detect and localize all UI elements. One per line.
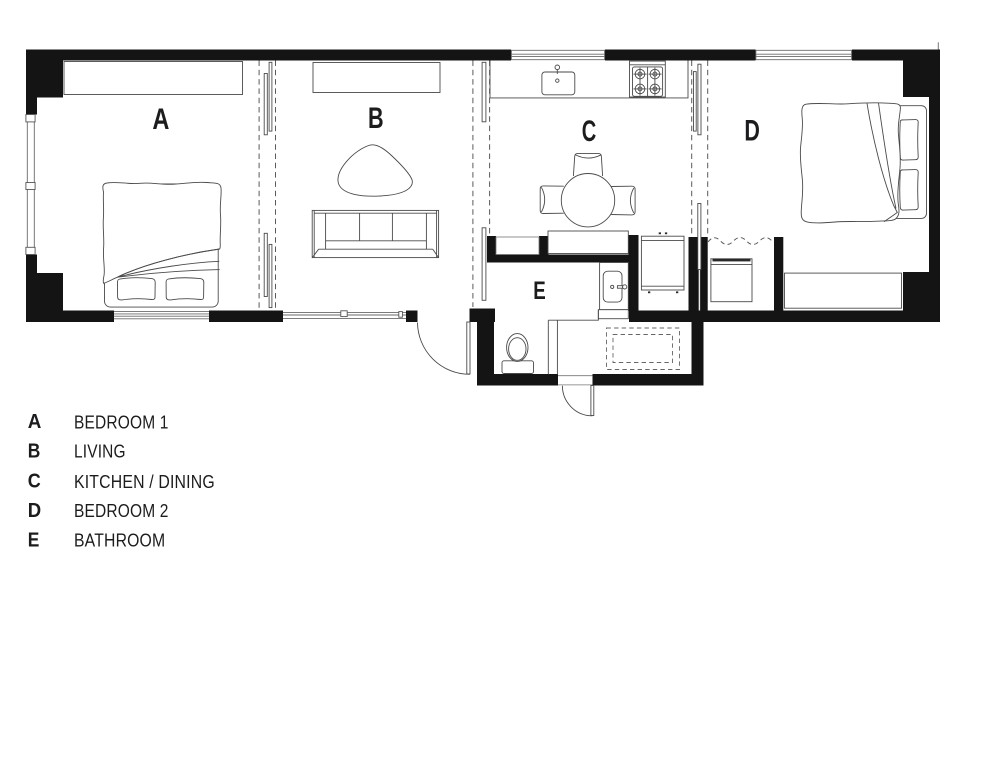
svg-text:B: B — [28, 439, 41, 462]
svg-text:B: B — [368, 102, 384, 135]
svg-text:BEDROOM 1: BEDROOM 1 — [74, 411, 169, 432]
svg-text:A: A — [28, 410, 42, 433]
svg-text:C: C — [582, 115, 597, 148]
svg-text:D: D — [744, 115, 760, 148]
svg-text:BEDROOM 2: BEDROOM 2 — [74, 500, 169, 521]
svg-text:E: E — [28, 528, 40, 551]
svg-text:BATHROOM: BATHROOM — [74, 530, 165, 551]
svg-text:D: D — [28, 499, 41, 522]
svg-text:C: C — [28, 470, 41, 493]
svg-text:LIVING: LIVING — [74, 441, 126, 462]
svg-text:A: A — [152, 103, 169, 136]
svg-text:E: E — [533, 277, 546, 305]
svg-text:KITCHEN / DINING: KITCHEN / DINING — [74, 471, 215, 492]
